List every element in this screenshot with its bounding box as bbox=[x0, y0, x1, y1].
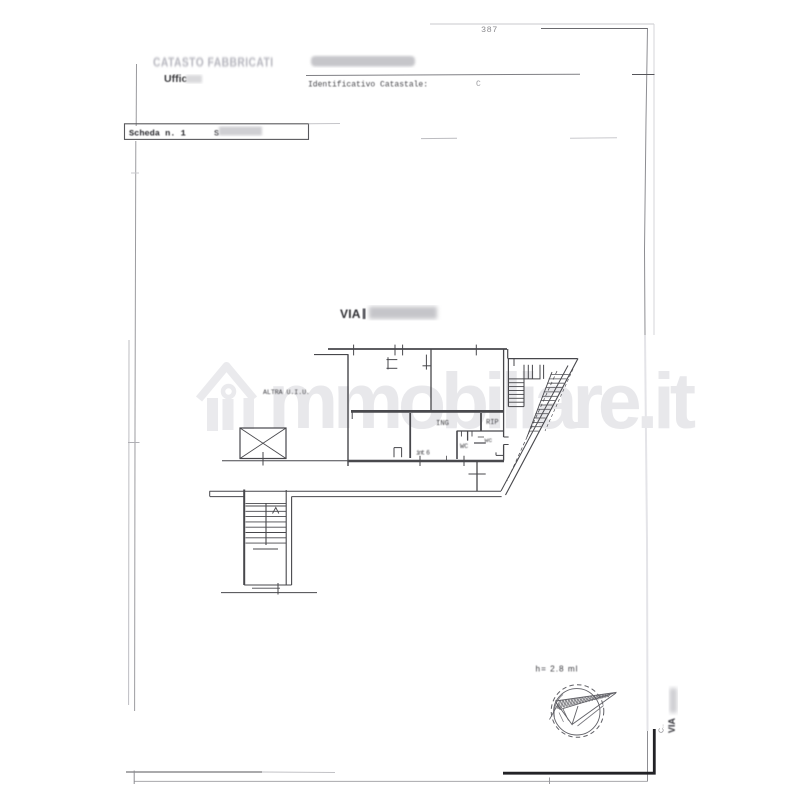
svg-text:Scheda n. 1: Scheda n. 1 bbox=[129, 129, 186, 139]
svg-text:387: 387 bbox=[481, 25, 498, 35]
svg-text:Identificativo Catastale:: Identificativo Catastale: bbox=[308, 81, 428, 90]
svg-text:Uffic: Uffic bbox=[164, 73, 187, 85]
svg-text:VIA: VIA bbox=[340, 307, 361, 321]
svg-text:WC: WC bbox=[460, 443, 468, 451]
svg-text:int 6: int 6 bbox=[416, 450, 430, 457]
svg-text:S: S bbox=[214, 129, 219, 139]
svg-text:h= 2.8 ml: h= 2.8 ml bbox=[536, 665, 578, 674]
svg-text:wc: wc bbox=[485, 437, 493, 444]
svg-text:mmobiliare.it: mmobiliare.it bbox=[268, 356, 696, 445]
svg-text:CATASTO FABBRICATI: CATASTO FABBRICATI bbox=[153, 55, 274, 69]
svg-text:C..: C.. bbox=[659, 724, 666, 733]
svg-text:VIA: VIA bbox=[667, 717, 677, 733]
svg-text:RIP: RIP bbox=[486, 419, 499, 427]
svg-text:ING: ING bbox=[436, 420, 449, 428]
svg-text:C: C bbox=[476, 80, 481, 89]
svg-text:ALTRA U.I.U.: ALTRA U.I.U. bbox=[263, 389, 310, 396]
